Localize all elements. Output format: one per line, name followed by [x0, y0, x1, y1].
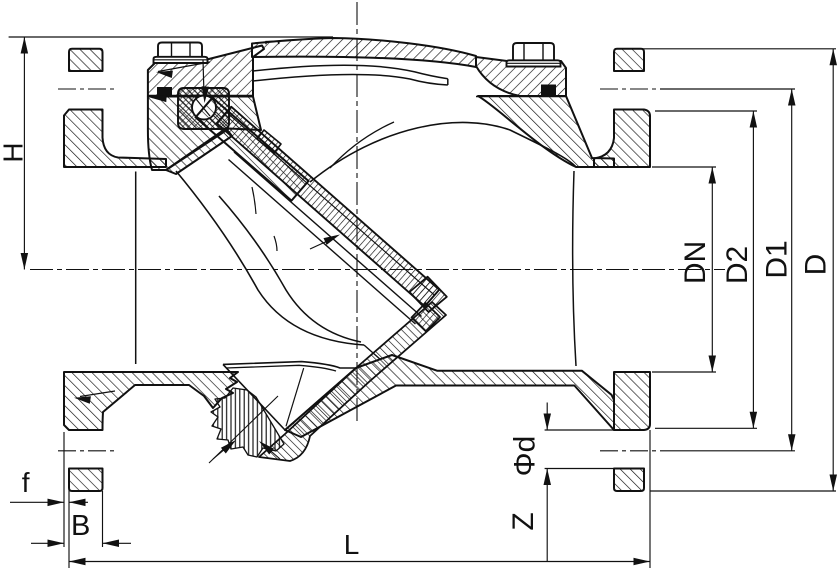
svg-text:D: D: [800, 254, 833, 276]
svg-text:Φd: Φd: [509, 436, 542, 477]
svg-text:H: H: [0, 142, 29, 162]
svg-text:D2: D2: [721, 246, 754, 284]
svg-text:L: L: [344, 529, 360, 560]
svg-text:f: f: [22, 467, 30, 498]
svg-text:Z: Z: [507, 512, 540, 530]
svg-text:D1: D1: [761, 240, 794, 278]
svg-text:DN: DN: [679, 241, 712, 284]
svg-text:B: B: [71, 510, 90, 542]
